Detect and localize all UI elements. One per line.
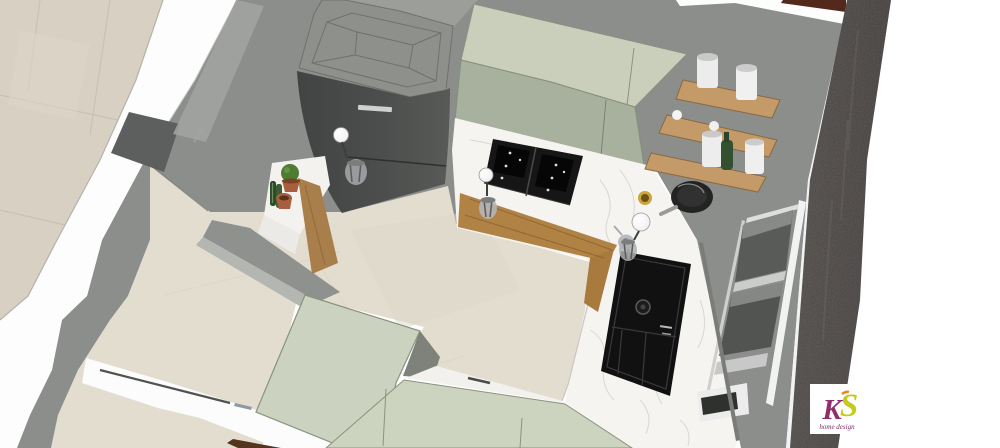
- svg-text:S: S: [840, 388, 858, 424]
- svg-text:home design: home design: [819, 423, 855, 431]
